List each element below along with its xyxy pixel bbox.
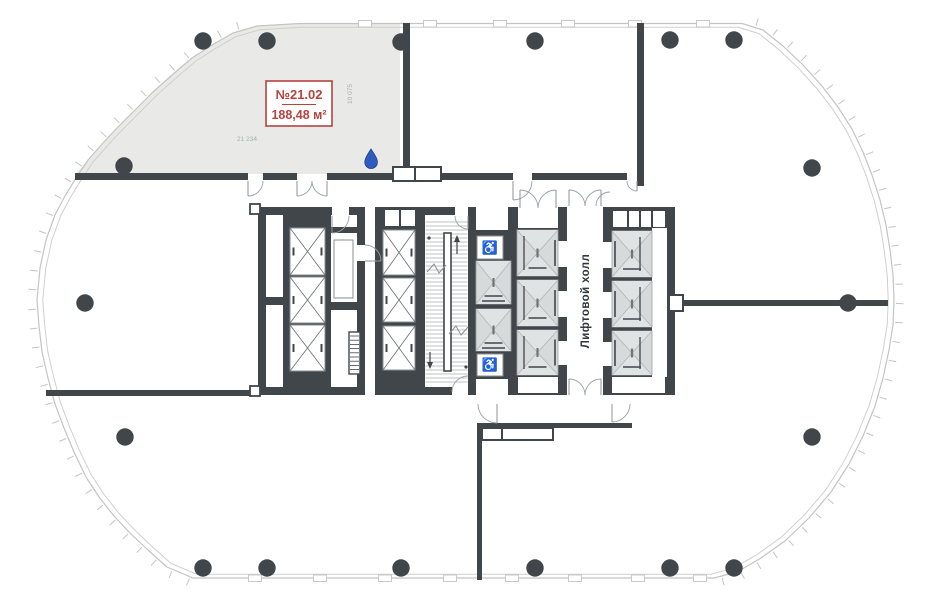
dimension-width: 21 234 [237, 136, 257, 143]
facade-tick [773, 552, 777, 558]
stair-arrow-down-head [427, 362, 433, 369]
cab-capacity-label [631, 300, 633, 309]
facade-tick [788, 42, 793, 47]
facade-tick [151, 560, 156, 566]
facade-tick [59, 438, 66, 441]
column [725, 31, 742, 48]
facade-tick [885, 379, 892, 381]
elevator-cab [612, 281, 652, 327]
facade-tick [75, 162, 81, 166]
facade-tick [184, 52, 189, 58]
facade-tick [741, 572, 745, 578]
facade-tick [101, 132, 106, 137]
opening [603, 292, 612, 318]
facade-tick [866, 152, 873, 155]
facade-tick [838, 100, 844, 105]
column [392, 559, 409, 576]
facade-tick [32, 347, 39, 348]
facade-tick [866, 433, 873, 436]
elevator-cab [476, 309, 511, 351]
facade-panel-joint [249, 575, 262, 582]
wall-segment [46, 390, 258, 396]
facade-tick [30, 270, 37, 271]
duct-mark [293, 296, 295, 304]
break-line [427, 264, 446, 273]
facade-tick [839, 483, 845, 487]
facade-tick [170, 65, 175, 71]
facade-tick [40, 384, 47, 386]
wall-segment [425, 207, 455, 215]
facade-tick [756, 19, 758, 26]
column [258, 559, 275, 576]
vent-shaft [383, 230, 415, 275]
duct-mark [386, 296, 388, 304]
facade-tick [880, 397, 887, 399]
facade-panel-joint [424, 21, 437, 28]
facade-tick [892, 341, 899, 342]
duct-mark [293, 344, 295, 352]
opening [629, 211, 639, 227]
column [839, 294, 856, 311]
opening [603, 242, 612, 268]
column [526, 559, 543, 576]
wall-segment [258, 207, 266, 395]
facade-tick [65, 178, 71, 182]
duct-mark [293, 248, 295, 256]
facade-tick [884, 207, 891, 209]
column [115, 157, 132, 174]
cab-capacity-label [492, 278, 494, 287]
wall-segment [258, 207, 332, 215]
wall-segment [331, 302, 357, 310]
unit-label[interactable]: №21.02 188,48 м² [266, 81, 332, 126]
wall-segment [477, 425, 482, 580]
facade-panel-joint [359, 21, 372, 28]
facade-panel-joint [494, 21, 507, 28]
unit-area: 188,48 м² [271, 108, 326, 122]
duct-mark [411, 344, 413, 352]
wall-segment [327, 173, 403, 180]
opening [558, 341, 567, 365]
counter-box [482, 428, 553, 440]
cab-capacity-label [536, 249, 538, 258]
stair-stringer [444, 233, 451, 371]
facade-panel-joint [314, 575, 327, 582]
elevator-cab [517, 330, 558, 375]
facade-tick [894, 264, 901, 265]
opening [558, 291, 567, 317]
cab-capacity-label [631, 250, 633, 259]
facade-tick [814, 70, 820, 75]
facade-tick [45, 403, 52, 405]
facade-tick [34, 251, 41, 253]
facade-tick [52, 421, 59, 424]
facade-tick [137, 547, 142, 552]
duct-mark [386, 249, 388, 257]
column [803, 159, 820, 176]
opening [518, 377, 558, 393]
facade-tick [858, 450, 865, 453]
facade-tick [849, 116, 855, 120]
facade-tick [75, 473, 82, 476]
floor-plan-page: Н [0, 0, 926, 600]
facade-tick [88, 146, 94, 151]
column [194, 32, 211, 49]
facade-panel-joint [506, 575, 519, 582]
wall-segment [532, 173, 627, 180]
opening [613, 211, 627, 227]
vent-shaft [383, 326, 415, 370]
duct-mark [321, 296, 323, 304]
column [194, 559, 211, 576]
cab-capacity-label [492, 326, 494, 335]
wall-segment [683, 300, 888, 306]
wheelchair-icon: ♿ [482, 240, 498, 255]
opening [518, 207, 558, 228]
elevator-cab [476, 261, 511, 304]
vent-shaft [383, 278, 415, 322]
wall-segment [266, 297, 283, 305]
facade-tick [28, 309, 35, 310]
opening [558, 241, 567, 267]
wall-segment [357, 207, 365, 245]
facade-tick [828, 499, 834, 504]
floor-plan-canvas: Н [0, 0, 926, 600]
staircase [426, 222, 469, 382]
facade-tick [39, 231, 46, 234]
opening [653, 211, 665, 227]
opening [612, 377, 665, 393]
stair-start-dot [464, 365, 467, 368]
stair-start-dot [427, 236, 430, 239]
elevator-cab [517, 230, 558, 276]
facade-tick [237, 22, 239, 29]
facade-tick [889, 360, 896, 362]
facade-panel-joint [569, 575, 582, 582]
facade-tick [155, 77, 160, 83]
cab-capacity-label [631, 349, 633, 358]
facade-tick [879, 188, 886, 190]
wall-segment [263, 173, 297, 180]
facade-tick [217, 31, 221, 38]
shaft-box [393, 167, 441, 181]
facade-panel-joint [694, 575, 707, 582]
column [661, 31, 678, 48]
facade-tick [789, 540, 794, 545]
opening [401, 210, 415, 226]
facade-tick [816, 513, 822, 518]
facade-tick [46, 213, 53, 216]
facade-tick [722, 578, 724, 585]
closet-outline [334, 240, 353, 298]
facade-panel-joint [632, 575, 645, 582]
facade-tick [802, 527, 807, 532]
facade-panel-joint [444, 575, 457, 582]
facade-tick [86, 490, 92, 494]
facade-tick [55, 195, 62, 198]
facade-panel-joint [697, 21, 710, 28]
facade-tick [114, 118, 119, 123]
facade-tick [891, 245, 898, 246]
column [76, 294, 93, 311]
facade-tick [141, 91, 146, 96]
vent-shaft [290, 325, 325, 371]
wall-segment [357, 261, 365, 395]
facade-tick [97, 505, 103, 510]
facade-tick [873, 415, 880, 418]
facade-tick [186, 579, 189, 586]
column [116, 428, 133, 445]
column [392, 33, 409, 50]
cab-capacity-label [536, 348, 538, 357]
duct-mark [411, 296, 413, 304]
facade-tick [858, 134, 865, 137]
corner-detail [250, 386, 260, 396]
facade-tick [801, 55, 806, 60]
facade-tick [827, 85, 833, 90]
facade-tick [30, 328, 37, 329]
corner-detail [250, 204, 260, 214]
facade-tick [757, 563, 761, 569]
facade-tick [169, 571, 172, 578]
column [526, 32, 543, 49]
elevator-cab [612, 331, 652, 375]
opening [652, 228, 667, 377]
dimension-depth: 10 075 [347, 84, 354, 104]
facade-panel-joint [562, 21, 575, 28]
wall-connector [669, 295, 683, 311]
elevator-cab [517, 280, 558, 326]
column [725, 559, 742, 576]
facade-tick [123, 534, 128, 539]
opening [603, 342, 612, 366]
duct-mark [321, 248, 323, 256]
wall-segment [75, 173, 248, 180]
vent-shaft [290, 277, 325, 323]
facade-tick [888, 226, 895, 227]
elevator-cab [612, 231, 652, 277]
facade-tick [127, 104, 132, 109]
facade-tick [110, 520, 115, 525]
facade-tick [873, 170, 880, 173]
elevator-hall-label: Лифтовой холл [580, 254, 592, 348]
wall-segment [283, 215, 288, 387]
column [258, 32, 275, 49]
facade-tick [28, 289, 35, 290]
duct-mark [411, 249, 413, 257]
unit-number: №21.02 [275, 87, 322, 102]
opening [385, 210, 399, 226]
facade-tick [849, 467, 855, 471]
wall-segment [637, 23, 644, 186]
facade-tick [36, 366, 43, 368]
facade-tick [67, 456, 74, 459]
cab-capacity-label [536, 299, 538, 308]
wall-segment [425, 387, 452, 395]
column [803, 428, 820, 445]
opening [641, 211, 651, 227]
vent-shaft [290, 228, 325, 275]
duct-mark [386, 344, 388, 352]
wall-segment [258, 387, 365, 395]
column [661, 559, 678, 576]
facade-tick [773, 29, 778, 35]
facade-panel-joint [379, 575, 392, 582]
wheelchair-icon: ♿ [482, 357, 498, 372]
stair-arrow-up-head [454, 235, 460, 242]
duct-mark [321, 344, 323, 352]
